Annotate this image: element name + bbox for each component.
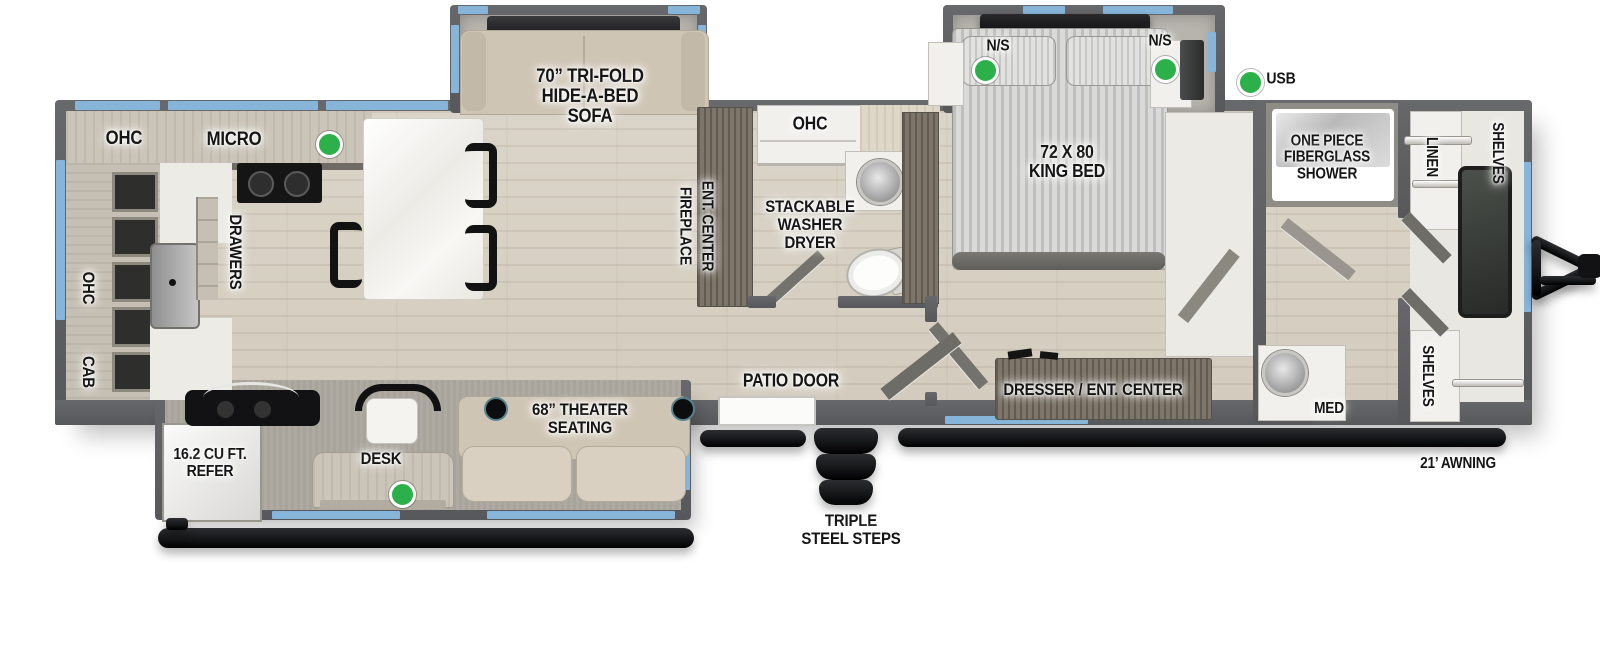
window bbox=[168, 101, 318, 110]
window bbox=[272, 511, 400, 519]
step bbox=[816, 454, 876, 480]
power-indicator-nightstand-right bbox=[1152, 56, 1179, 83]
label-steps: TRIPLE STEEL STEPS bbox=[801, 512, 900, 548]
label-linen: LINEN bbox=[1423, 137, 1439, 177]
label-shower: ONE PIECE FIBERGLASS SHOWER bbox=[1284, 134, 1370, 183]
bath-bedroom-wall bbox=[925, 296, 937, 322]
label-bath-ohc: OHC bbox=[793, 115, 828, 134]
label-dresser: DRESSER / ENT. CENTER bbox=[1003, 381, 1182, 399]
slide-awning-rail bbox=[158, 528, 694, 548]
stove-burner bbox=[284, 171, 310, 197]
label-king-bed: 72 X 80 KING BED bbox=[1029, 143, 1105, 181]
awning-rail-left bbox=[700, 430, 806, 447]
usb-indicator bbox=[1237, 69, 1264, 96]
label-ent-center: ENT. CENTER bbox=[698, 181, 715, 271]
window bbox=[1208, 32, 1216, 72]
bath-closet-wall bbox=[1398, 298, 1410, 425]
label-washer-dryer: STACKABLE WASHER DRYER bbox=[765, 198, 855, 252]
rv-floorplan: OHC MICRO OHC CAB DRAWERS 70” TRI-FOLD H… bbox=[0, 0, 1600, 652]
rear-tv-panel bbox=[1458, 166, 1512, 318]
nightstand-left bbox=[928, 42, 964, 106]
label-shelves-bottom: SHELVES bbox=[1419, 345, 1435, 406]
step bbox=[819, 480, 873, 505]
bath-vanity-line bbox=[760, 140, 856, 142]
label-fireplace: FIREPLACE bbox=[676, 187, 693, 265]
sofa-armrest bbox=[681, 32, 705, 111]
bedroom-tv bbox=[1180, 40, 1204, 100]
desk-front-edge bbox=[320, 500, 446, 509]
label-kitchen-ohc: OHC bbox=[106, 129, 143, 149]
window bbox=[56, 160, 65, 320]
cooktop-burner bbox=[217, 401, 234, 418]
faucet bbox=[169, 279, 176, 286]
bath-wall-segment bbox=[748, 296, 776, 308]
label-refer: 16.2 CU FT. REFER bbox=[173, 447, 246, 481]
sofa-armrest bbox=[462, 32, 486, 111]
label-patio-door: PATIO DOOR bbox=[743, 372, 839, 391]
bath-closet-wall bbox=[1398, 100, 1410, 218]
awning-rail bbox=[898, 428, 1506, 447]
patio-door-panel bbox=[718, 396, 816, 426]
label-awning: 21’ AWNING bbox=[1420, 456, 1496, 472]
cupholder bbox=[671, 397, 695, 421]
hitch-coupler bbox=[1578, 254, 1600, 278]
cooktop-burner bbox=[254, 401, 271, 418]
power-indicator-kitchen bbox=[316, 131, 343, 158]
window bbox=[451, 25, 459, 93]
bath-wardrobe-pillar bbox=[902, 112, 939, 304]
label-micro: MICRO bbox=[207, 130, 262, 150]
window bbox=[1103, 6, 1173, 14]
window bbox=[326, 101, 448, 110]
label-ns-left: N/S bbox=[987, 39, 1010, 56]
closet-rod bbox=[1452, 379, 1524, 387]
stove-burner bbox=[248, 171, 274, 197]
bed-foot-board bbox=[952, 252, 1166, 270]
label-shelves-top: SHELVES bbox=[1489, 122, 1505, 183]
cupholder bbox=[484, 397, 508, 421]
label-sofa: 70” TRI-FOLD HIDE-A-BED SOFA bbox=[536, 67, 644, 127]
label-desk: DESK bbox=[361, 450, 402, 468]
stabilizer-foot bbox=[166, 518, 188, 530]
window bbox=[668, 6, 700, 14]
drawer-stack bbox=[196, 197, 218, 300]
bedroom-wardrobe bbox=[1165, 112, 1255, 357]
window bbox=[75, 101, 160, 110]
power-indicator-desk bbox=[389, 481, 416, 508]
hitch-jack bbox=[1532, 240, 1541, 296]
label-ns-right: N/S bbox=[1149, 34, 1172, 51]
label-usb: USB bbox=[1266, 72, 1295, 89]
dinette-chair bbox=[465, 225, 497, 291]
theater-cushion bbox=[462, 446, 572, 502]
desk-chair-back bbox=[355, 384, 441, 411]
theater-cushion bbox=[576, 446, 686, 502]
step bbox=[814, 428, 878, 454]
cabinet-door bbox=[112, 172, 158, 212]
label-med: MED bbox=[1314, 401, 1344, 417]
window bbox=[487, 511, 675, 519]
dinette-chair bbox=[465, 143, 497, 208]
rear-bath-sink bbox=[1262, 350, 1308, 396]
pillow bbox=[1066, 36, 1160, 86]
label-cab: CAB bbox=[79, 356, 97, 388]
label-theater: 68” THEATER SEATING bbox=[532, 401, 628, 437]
window bbox=[1023, 6, 1065, 14]
bath-sink bbox=[857, 159, 903, 205]
dinette-chair bbox=[330, 222, 362, 288]
power-indicator-nightstand-left bbox=[972, 57, 999, 84]
window bbox=[458, 6, 488, 14]
label-left-ohc: OHC bbox=[79, 272, 97, 305]
bath-bedroom-wall bbox=[925, 392, 937, 406]
kitchen-sink bbox=[150, 243, 200, 329]
label-drawers: DRAWERS bbox=[226, 214, 244, 289]
window bbox=[1523, 162, 1531, 312]
